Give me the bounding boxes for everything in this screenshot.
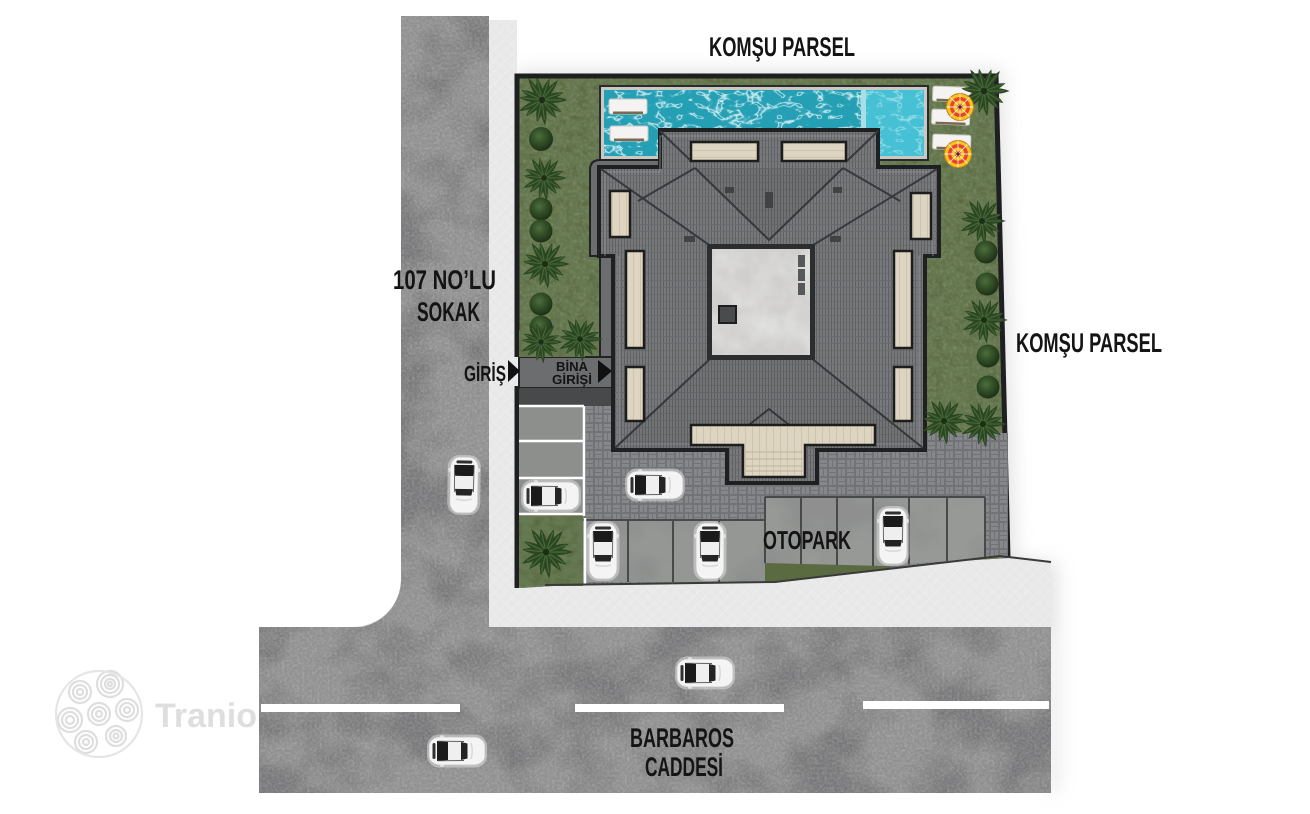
svg-text:OTOPARK: OTOPARK bbox=[763, 525, 851, 555]
svg-text:KOMŞU PARSEL: KOMŞU PARSEL bbox=[709, 32, 855, 62]
svg-text:GİRİŞİ: GİRİŞİ bbox=[552, 372, 592, 387]
svg-text:KOMŞU PARSEL: KOMŞU PARSEL bbox=[1016, 328, 1162, 358]
svg-text:CADDESİ: CADDESİ bbox=[645, 752, 723, 782]
svg-text:107 NO’LU: 107 NO’LU bbox=[393, 265, 496, 295]
svg-text:Tranio: Tranio bbox=[155, 697, 257, 735]
svg-text:GİRİŞ: GİRİŞ bbox=[464, 361, 506, 386]
svg-text:SOKAK: SOKAK bbox=[417, 297, 480, 327]
svg-text:BARBAROS: BARBAROS bbox=[630, 723, 734, 753]
